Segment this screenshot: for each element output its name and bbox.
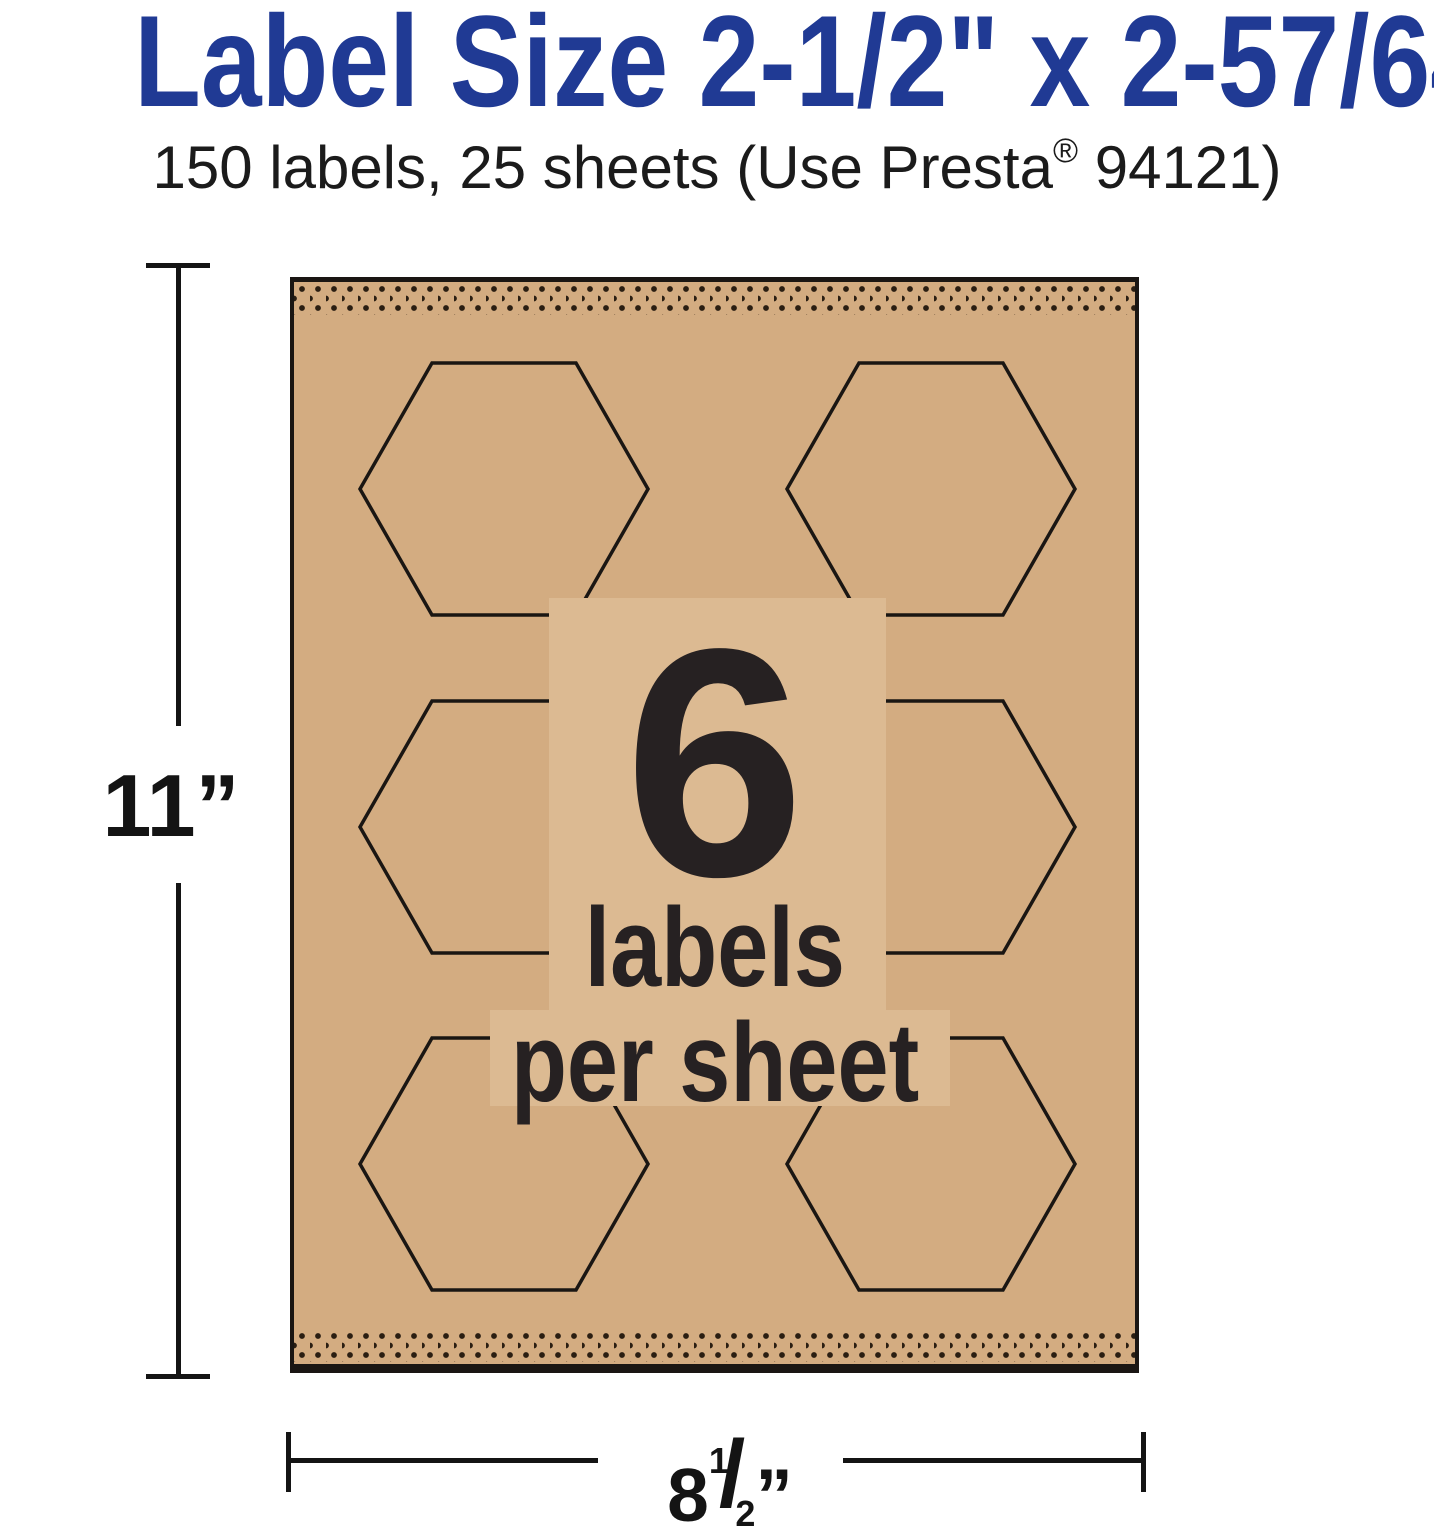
- labels-count: 6: [294, 600, 1135, 925]
- product-diagram-canvas: Label Size 2-1/2" x 2-57/64" 150 labels,…: [0, 0, 1434, 1500]
- height-dimension-line-lower: [176, 883, 181, 1379]
- width-fraction-denominator: 2: [735, 1493, 755, 1534]
- hexagon-label-outline: [360, 363, 648, 615]
- hexagon-label-outline: [787, 363, 1075, 615]
- height-dimension-line-upper: [176, 263, 181, 726]
- page-title-text: Label Size 2-1/2" x 2-57/64": [134, 0, 1434, 126]
- width-dimension-cap-right: [1141, 1432, 1146, 1492]
- label-sheet: 6 labels per sheet: [290, 277, 1139, 1373]
- width-dimension-label: 81/2”: [600, 1427, 860, 1533]
- width-integer: 8: [667, 1453, 709, 1537]
- width-dimension-line-right: [843, 1458, 1146, 1463]
- width-dimension-line-left: [289, 1458, 598, 1463]
- height-dimension-cap-bottom: [146, 1374, 210, 1379]
- height-dimension-label: 11”: [96, 762, 246, 850]
- labels-caption-line1: labels: [294, 892, 1135, 1004]
- subtitle-text: 150 labels, 25 sheets (Use Presta® 94121…: [152, 134, 1281, 198]
- registered-trademark-mark: ®: [1053, 132, 1078, 170]
- label-sheet-face: 6 labels per sheet: [294, 282, 1135, 1364]
- labels-caption-line2: per sheet: [294, 1007, 1135, 1119]
- page-subtitle: 150 labels, 25 sheets (Use Presta® 94121…: [0, 134, 1434, 198]
- width-inch-mark: ”: [755, 1453, 793, 1537]
- page-title: Label Size 2-1/2" x 2-57/64": [0, 0, 1434, 126]
